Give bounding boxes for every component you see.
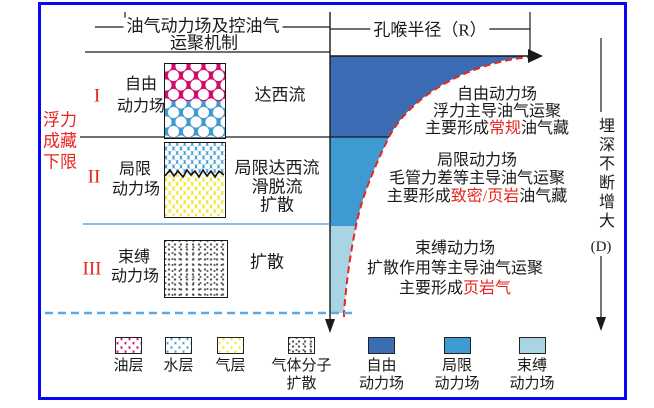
legend-bound-field-swatch bbox=[519, 337, 546, 354]
zone2-desc-line2: 毛管力差等主导油气运聚 bbox=[357, 170, 597, 188]
zone2-description: 局限动力场 毛管力差等主导油气运聚 主要形成致密/页岩油气藏 bbox=[357, 152, 597, 206]
zone2-mechanism-3: 扩散 bbox=[260, 197, 294, 216]
wavy-contact-line bbox=[165, 168, 224, 181]
zone2-desc-post: 油气藏 bbox=[519, 188, 567, 205]
zone2-numeral: II bbox=[88, 168, 101, 189]
figure-canvas: 油气动力场及控油气 运聚机制 孔喉半径（R） 浮力 成藏 下限 I II III… bbox=[0, 0, 654, 408]
legend-label-limited-field: 局限 动力场 bbox=[415, 357, 499, 393]
depth-axis-unit: (D) bbox=[591, 239, 612, 256]
legend-gas-swatch bbox=[217, 337, 244, 354]
zone1-desc-line1: 自由动力场 bbox=[377, 86, 617, 103]
zone1-description: 自由动力场 浮力主导油气运聚 主要形成常规油气藏 bbox=[377, 86, 617, 137]
depth-axis-arrow bbox=[325, 319, 335, 333]
legend-diffusion-line2: 扩散 bbox=[260, 375, 344, 393]
legend-free-line1: 自由 bbox=[340, 357, 424, 375]
zone2-name-line2: 动力场 bbox=[112, 181, 160, 199]
oil-layer-pattern bbox=[165, 64, 225, 101]
legend-diffusion-line1: 气体分子 bbox=[260, 357, 344, 375]
zone3-desc-red: 页岩气 bbox=[463, 280, 511, 297]
zone3-pattern-box bbox=[164, 240, 228, 298]
legend-free-field-swatch bbox=[368, 337, 395, 354]
zone3-mechanism: 扩散 bbox=[250, 254, 284, 273]
mechanism-header-line2: 运聚机制 bbox=[170, 35, 238, 54]
zone3-name-line2: 动力场 bbox=[111, 268, 159, 286]
legend-oil-swatch bbox=[115, 337, 142, 354]
legend-label-free-field: 自由 动力场 bbox=[340, 357, 424, 393]
zone2-mechanism-2: 滑脱流 bbox=[252, 179, 303, 198]
depth-axis-label: 埋深不断增大 bbox=[592, 117, 616, 243]
legend-limited-line2: 动力场 bbox=[415, 375, 499, 393]
zone2-desc-pre: 主要形成 bbox=[387, 188, 451, 205]
zone3-desc-pre: 主要形成 bbox=[399, 280, 463, 297]
zone1-name-line1: 自由 bbox=[125, 76, 157, 94]
zone2-mechanism-1: 局限达西流 bbox=[235, 160, 320, 179]
zone3-desc-line3: 主要形成页岩气 bbox=[345, 279, 565, 299]
zone1-mechanism: 达西流 bbox=[255, 87, 306, 106]
zone3-numeral: III bbox=[83, 260, 102, 281]
zone3-name-line1: 束缚 bbox=[118, 249, 150, 267]
legend-water-swatch bbox=[165, 337, 192, 354]
zone1-name-line2: 动力场 bbox=[117, 98, 165, 116]
legend-bound-line1: 束缚 bbox=[490, 357, 574, 375]
zone2-pattern-box bbox=[164, 142, 226, 218]
legend-diffusion-swatch bbox=[288, 337, 315, 354]
buoyancy-limit-line2: 成藏 bbox=[43, 133, 77, 152]
zone2-desc-red: 致密/页岩 bbox=[451, 188, 519, 205]
buoyancy-limit-line3: 下限 bbox=[43, 154, 77, 173]
zone1-desc-line2: 浮力主导油气运聚 bbox=[377, 103, 617, 120]
zone1-desc-pre: 主要形成 bbox=[425, 120, 489, 137]
zone1-desc-line3: 主要形成常规油气藏 bbox=[377, 120, 617, 137]
legend-label-diffusion: 气体分子 扩散 bbox=[260, 357, 344, 393]
zone2-name-line1: 局限 bbox=[119, 161, 151, 179]
zone1-desc-red: 常规 bbox=[489, 120, 521, 137]
legend-limited-field-swatch bbox=[444, 337, 471, 354]
zone1-desc-post: 油气藏 bbox=[521, 120, 569, 137]
pore-radius-header: 孔喉半径（R） bbox=[370, 22, 489, 41]
depth-increase-arrow bbox=[596, 317, 606, 331]
legend-free-line2: 动力场 bbox=[340, 375, 424, 393]
zone1-pattern-box bbox=[164, 63, 226, 139]
zone3-desc-line2: 扩散作用等主导油气运聚 bbox=[345, 259, 565, 279]
buoyancy-limit-line1: 浮力 bbox=[43, 112, 77, 131]
legend-bound-line2: 动力场 bbox=[490, 375, 574, 393]
legend-limited-line1: 局限 bbox=[415, 357, 499, 375]
zone3-description: 束缚动力场 扩散作用等主导油气运聚 主要形成页岩气 bbox=[345, 239, 565, 299]
zone2-desc-line3: 主要形成致密/页岩油气藏 bbox=[357, 188, 597, 206]
zone3-desc-line1: 束缚动力场 bbox=[345, 239, 565, 259]
zone1-numeral: I bbox=[94, 87, 100, 108]
zone2-desc-line1: 局限动力场 bbox=[357, 152, 597, 170]
legend-label-bound-field: 束缚 动力场 bbox=[490, 357, 574, 393]
pore-radius-arrow bbox=[528, 49, 543, 63]
water-layer-pattern bbox=[165, 101, 225, 137]
